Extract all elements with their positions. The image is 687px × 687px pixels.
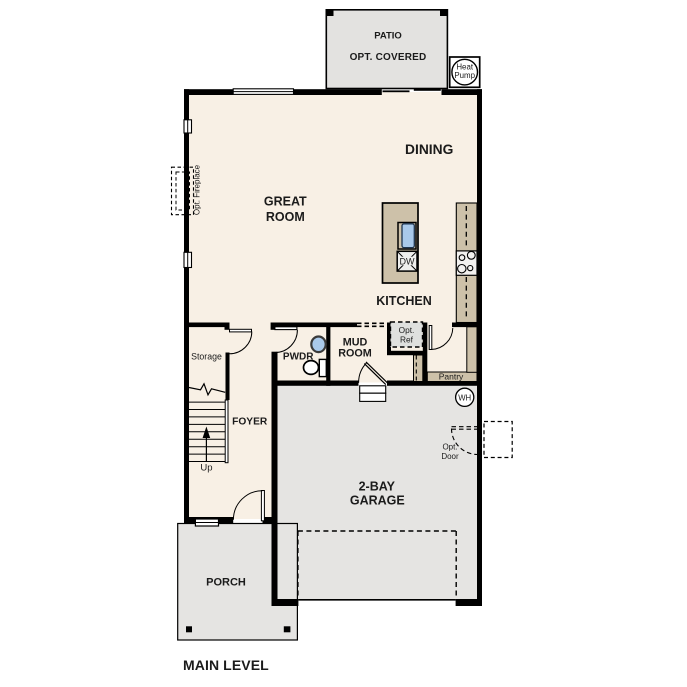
svg-text:GREAT: GREAT [264,195,307,209]
svg-text:ROOM: ROOM [266,210,305,224]
svg-text:Pump: Pump [454,71,475,80]
svg-text:Ref: Ref [400,335,414,345]
svg-text:FOYER: FOYER [232,416,268,427]
svg-text:MAIN LEVEL: MAIN LEVEL [183,657,269,673]
svg-text:GARAGE: GARAGE [350,494,405,508]
svg-text:Door: Door [441,452,459,461]
svg-text:Pantry: Pantry [439,372,464,382]
svg-text:Opt.: Opt. [399,325,415,335]
svg-text:KITCHEN: KITCHEN [376,294,432,308]
svg-text:Opt.: Opt. [442,443,457,452]
svg-text:WH: WH [458,393,471,402]
svg-text:2-BAY: 2-BAY [359,480,396,494]
svg-text:PATIO: PATIO [374,31,402,42]
svg-text:PWDR: PWDR [283,351,314,362]
svg-text:OPT. COVERED: OPT. COVERED [350,52,427,63]
svg-text:PORCH: PORCH [206,577,246,589]
svg-text:Heat: Heat [456,62,473,71]
svg-text:DINING: DINING [405,142,453,157]
svg-text:Up: Up [200,463,212,474]
svg-text:DW: DW [400,257,415,267]
svg-text:ROOM: ROOM [338,348,372,360]
svg-text:Storage: Storage [191,352,222,362]
svg-text:Opt. Fireplace: Opt. Fireplace [193,164,202,215]
